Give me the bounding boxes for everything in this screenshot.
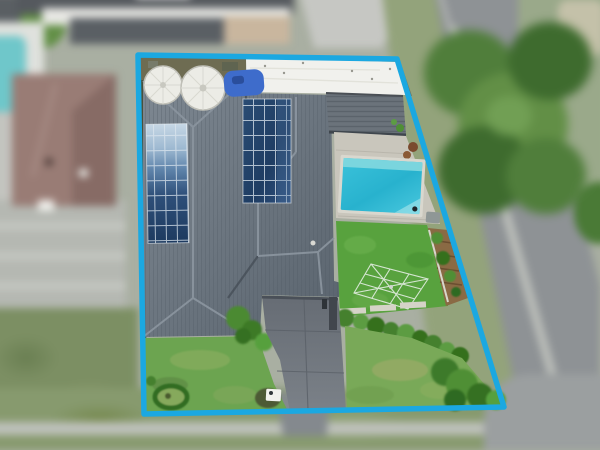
property-boundary-line [138, 55, 504, 414]
aerial-photo [0, 0, 600, 450]
boundary-overlay [0, 0, 600, 450]
